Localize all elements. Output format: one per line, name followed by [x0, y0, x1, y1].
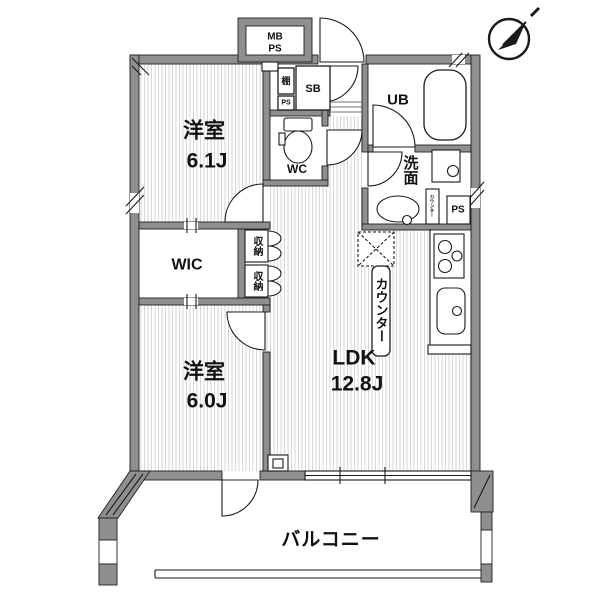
pillar-box — [268, 455, 288, 471]
pipe-space-top-label: PS — [281, 100, 291, 107]
bedroom-lower-size: 6.0J — [187, 390, 228, 413]
bedroom-upper-size: 6.1J — [187, 150, 228, 173]
washroom-label: 洗面 — [402, 154, 419, 186]
floor-plan: 洋室 6.1J 洋室 6.0J LDK 12.8J WIC WC UB 洗面 バ… — [0, 0, 600, 600]
kitchen-counter-end — [428, 345, 471, 354]
hallway-floor2 — [270, 186, 362, 229]
wc-label: WC — [287, 162, 307, 176]
balcony-floor — [117, 480, 482, 570]
ldk-name: LDK — [332, 347, 375, 370]
bedroom-lower-name: 洋室 — [183, 360, 225, 384]
ldk-size: 12.8J — [331, 373, 384, 396]
bathtub-icon — [424, 70, 466, 140]
kitchen-counter-label: カウンター — [374, 278, 389, 343]
bedroom-upper-name: 洋室 — [183, 119, 225, 143]
refrigerator-space-icon — [358, 232, 394, 266]
balcony-label: バルコニー — [281, 529, 381, 551]
meter-box-label2: PS — [268, 44, 282, 55]
storage-lower-label: 収納 — [251, 271, 263, 292]
unit-bath-label: UB — [387, 92, 409, 109]
shoe-box-label: SB — [305, 83, 320, 95]
kitchen-sink-icon — [437, 288, 465, 334]
washing-machine-icon — [432, 150, 460, 182]
wic-label: WIC — [171, 257, 203, 274]
pipe-space-side-label: PS — [451, 205, 465, 216]
wall-hatch-box — [262, 62, 278, 71]
meter-box-label1: MB — [267, 32, 283, 43]
stove-icon — [434, 234, 464, 278]
storage-upper-label: 収納 — [251, 236, 263, 257]
shelf-label: 棚 — [281, 75, 290, 86]
laundry-counter-label: カウンター — [429, 194, 435, 218]
